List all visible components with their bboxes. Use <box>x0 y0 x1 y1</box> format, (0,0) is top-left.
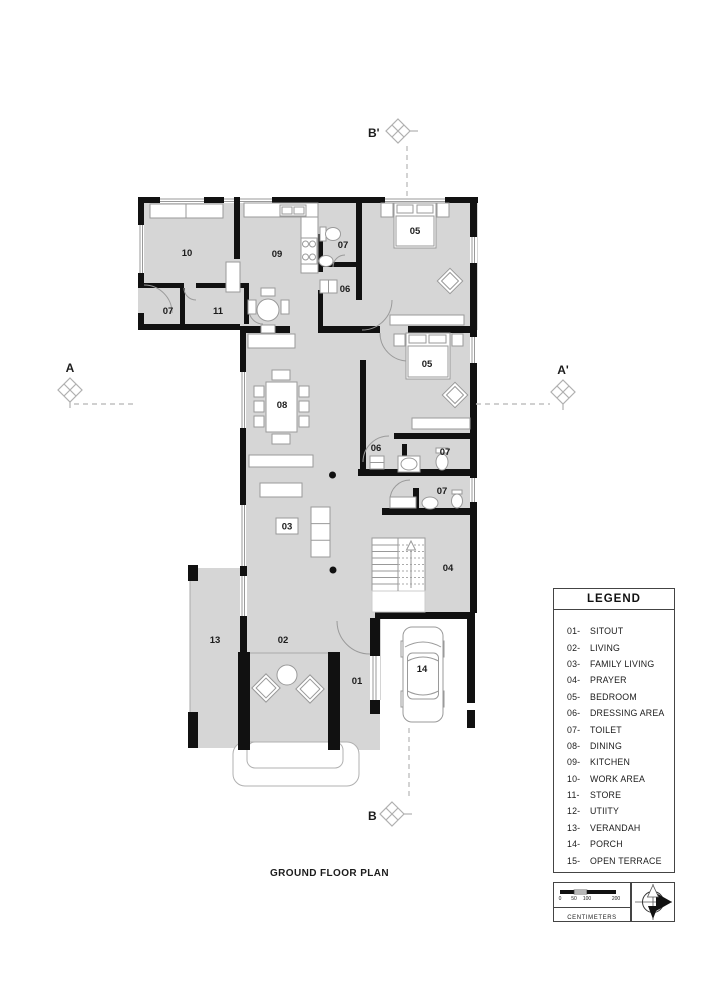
room-label-02: 02 <box>278 635 289 646</box>
room-label-05a: 05 <box>410 226 421 237</box>
counter-icon <box>390 315 464 325</box>
room-label-07b: 07 <box>338 240 349 251</box>
dresser-icon <box>320 280 337 293</box>
dresser-icon <box>370 456 384 469</box>
legend-item: 10-WORK AREA <box>567 771 674 787</box>
room-label-14: 14 <box>417 664 428 675</box>
scale-tick-50: 50 <box>571 896 577 902</box>
legend-item: 14-PORCH <box>567 836 674 852</box>
room-label-06a: 06 <box>340 284 351 295</box>
room-label-13: 13 <box>210 635 221 646</box>
north-arrow-cell <box>631 882 675 922</box>
toilet-icon <box>452 490 463 508</box>
entrance-steps <box>233 742 359 786</box>
room-label-11: 11 <box>213 306 224 317</box>
legend-panel: LEGEND 01-SITOUT 02-LIVING 03-FAMILY LIV… <box>553 588 675 873</box>
washbasin-icon <box>390 497 438 509</box>
washbasin-icon <box>319 256 333 267</box>
room-label-01: 01 <box>352 676 363 687</box>
stove-icon <box>301 238 317 264</box>
room-label-03: 03 <box>282 522 293 533</box>
scale-bar-cell: 0 50 100 200 CENTIMETERS <box>553 882 631 922</box>
legend-item: 11-STORE <box>567 787 674 803</box>
legend-item: 08-DINING <box>567 738 674 754</box>
scale-bar: 0 50 100 200 <box>554 883 630 902</box>
legend-item: 06-DRESSING AREA <box>567 705 674 721</box>
stairs-icon <box>372 538 425 612</box>
legend-item: 02-LIVING <box>567 639 674 655</box>
scale-tick-100: 100 <box>583 896 592 902</box>
toilet-icon <box>320 227 341 241</box>
legend-item: 01-SITOUT <box>567 623 674 639</box>
legend-item: 04-PRAYER <box>567 672 674 688</box>
room-label-05b: 05 <box>422 359 433 370</box>
room-label-07c: 07 <box>440 447 451 458</box>
sideboard-icon <box>248 334 295 348</box>
legend-item: 15-OPEN TERRACE <box>567 852 674 868</box>
drawing-title: GROUND FLOOR PLAN <box>270 868 389 879</box>
legend-item: 03-FAMILY LIVING <box>567 656 674 672</box>
scale-tick-200: 200 <box>612 896 621 902</box>
legend-item: 09-KITCHEN <box>567 754 674 770</box>
label-a-prime: A' <box>557 363 569 377</box>
label-b: B <box>368 809 377 823</box>
label-a: A <box>66 361 75 375</box>
marker-a-prime-icon <box>551 380 575 410</box>
legend-item: 05-BEDROOM <box>567 689 674 705</box>
room-label-09: 09 <box>272 249 283 260</box>
marker-b-prime-icon <box>386 119 418 143</box>
north-arrow-icon <box>632 883 674 921</box>
sofa-icon <box>311 507 330 557</box>
legend-body: 01-SITOUT 02-LIVING 03-FAMILY LIVING 04-… <box>553 610 675 873</box>
sink-icon <box>280 205 306 216</box>
room-label-10: 10 <box>182 248 193 259</box>
label-b-prime: B' <box>368 126 380 140</box>
washbasin-icon <box>398 456 420 472</box>
legend-item: 13-VERANDAH <box>567 820 674 836</box>
floor-plan-sheet: B' A A' B 10 09 07 11 07 06 05 08 05 06 … <box>0 0 707 1000</box>
room-label-08: 08 <box>277 400 288 411</box>
marker-b-icon <box>380 802 412 826</box>
scale-unit-label: CENTIMETERS <box>554 907 630 927</box>
counter-icon <box>412 418 470 429</box>
room-label-07d: 07 <box>437 486 448 497</box>
scale-tick-0: 0 <box>559 896 562 902</box>
bench-icon <box>249 455 313 467</box>
room-label-06b: 06 <box>371 443 382 454</box>
cabinet-icon <box>260 483 302 497</box>
room-label-04: 04 <box>443 563 454 574</box>
room-label-07a: 07 <box>163 306 174 317</box>
legend-item: 07-TOILET <box>567 721 674 737</box>
legend-title: LEGEND <box>553 588 675 610</box>
legend-item: 12-UTIITY <box>567 803 674 819</box>
